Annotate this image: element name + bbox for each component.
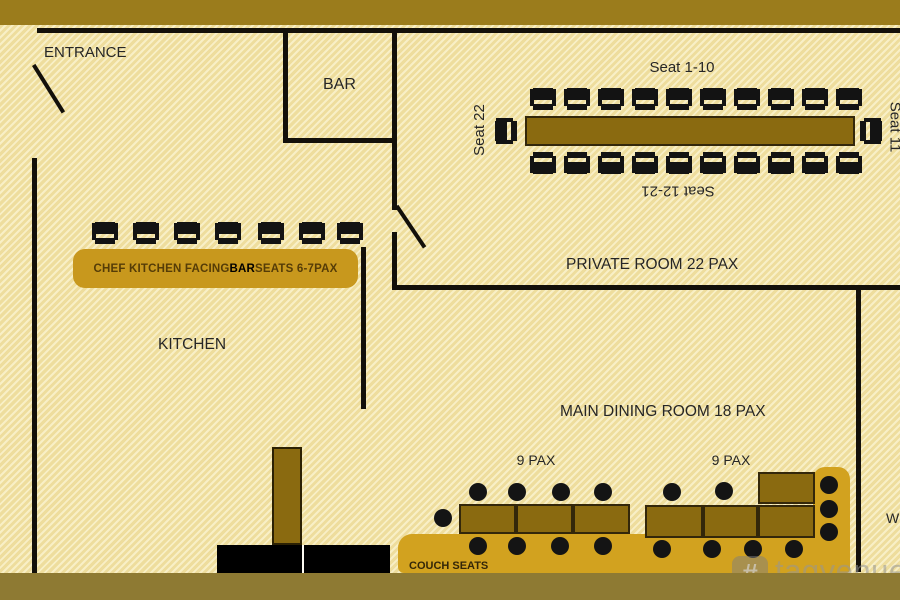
guest-seat-dot: [594, 537, 612, 555]
black-counter: [304, 545, 390, 573]
guest-seat-dot: [434, 509, 452, 527]
chair-icon: [215, 222, 241, 246]
entrance-label: ENTRANCE: [44, 45, 127, 62]
chair-icon: [632, 150, 658, 174]
guest-seat-dot: [653, 540, 671, 558]
wall-private-bottom: [392, 285, 900, 290]
dining-table: [703, 505, 758, 538]
pax-right-label: 9 PAX: [712, 453, 751, 468]
chair-icon: [133, 222, 159, 246]
black-counter: [217, 545, 302, 573]
wall-left: [32, 158, 37, 573]
counter-divider: [302, 545, 304, 573]
guest-seat-dot: [820, 523, 838, 541]
dining-table: [459, 504, 516, 534]
private-room-label: PRIVATE ROOM 22 PAX: [566, 256, 738, 273]
entrance-door-leaf: [32, 64, 65, 114]
chair-icon: [700, 88, 726, 112]
chair-icon: [564, 150, 590, 174]
seat-12-21-label: Seat 12-21: [641, 182, 714, 199]
guest-seat-dot: [663, 483, 681, 501]
main-dining-label: MAIN DINING ROOM 18 PAX: [560, 403, 766, 420]
dining-table: [573, 504, 630, 534]
wall-kitchen: [361, 247, 366, 409]
guest-seat-dot: [508, 537, 526, 555]
chair-icon: [598, 150, 624, 174]
chair-icon: [495, 118, 519, 144]
guest-seat-dot: [552, 483, 570, 501]
chef-counter-label-2: SEATS 6-7PAX: [255, 263, 338, 275]
chair-icon: [530, 150, 556, 174]
private-room-door-leaf: [395, 205, 426, 249]
wall-bar-bottom: [283, 138, 395, 143]
wall-private-left: [392, 232, 397, 289]
plan-layer: [0, 0, 900, 600]
chair-icon: [598, 88, 624, 112]
chair-icon: [836, 150, 862, 174]
chair-icon: [564, 88, 590, 112]
wall-bar-right: [392, 28, 397, 210]
guest-seat-dot: [551, 537, 569, 555]
chair-icon: [700, 150, 726, 174]
chair-icon: [337, 222, 363, 246]
chair-icon: [666, 88, 692, 112]
guest-seat-dot: [469, 537, 487, 555]
bar-label: BAR: [323, 76, 356, 94]
chair-icon: [632, 88, 658, 112]
chair-icon: [258, 222, 284, 246]
chair-icon: [92, 222, 118, 246]
floor-plan: CHEF KITCHEN FACING BAR SEATS 6-7PAX ENT…: [0, 0, 900, 600]
chef-counter-banner: CHEF KITCHEN FACING BAR SEATS 6-7PAX: [73, 249, 358, 288]
chef-counter-label-1: CHEF KITCHEN FACING: [93, 263, 229, 275]
guest-seat-dot: [820, 476, 838, 494]
wall-right-interior: [856, 285, 861, 572]
chair-icon: [802, 88, 828, 112]
chair-icon: [530, 88, 556, 112]
chair-icon: [768, 150, 794, 174]
dining-table: [645, 505, 703, 538]
private-room-table: [525, 116, 855, 146]
kitchen-column: [272, 447, 302, 545]
chef-counter-label-bar: BAR: [230, 263, 256, 275]
seat-22-label: Seat 22: [472, 104, 489, 156]
wall-top: [37, 28, 900, 33]
guest-seat-dot: [715, 482, 733, 500]
guest-seat-dot: [820, 500, 838, 518]
guest-seat-dot: [703, 540, 721, 558]
dining-table: [758, 505, 815, 538]
wall-bar-left: [283, 28, 288, 140]
seat-11-label: Seat 11: [886, 102, 900, 153]
dining-table: [516, 504, 573, 534]
dining-table: [758, 472, 815, 504]
chair-icon: [666, 150, 692, 174]
chair-icon: [734, 150, 760, 174]
footer-band: [0, 573, 900, 600]
guest-seat-dot: [469, 483, 487, 501]
partial-right-label: W: [886, 511, 899, 526]
chair-icon: [734, 88, 760, 112]
kitchen-label: KITCHEN: [158, 336, 226, 353]
chair-icon: [174, 222, 200, 246]
guest-seat-dot: [594, 483, 612, 501]
seat-1-10-label: Seat 1-10: [649, 60, 714, 77]
chair-icon: [299, 222, 325, 246]
chair-icon: [858, 118, 882, 144]
chair-icon: [768, 88, 794, 112]
guest-seat-dot: [508, 483, 526, 501]
chair-icon: [802, 150, 828, 174]
couch-seats-label: COUCH SEATS: [409, 560, 488, 572]
chair-icon: [836, 88, 862, 112]
pax-left-label: 9 PAX: [517, 453, 556, 468]
